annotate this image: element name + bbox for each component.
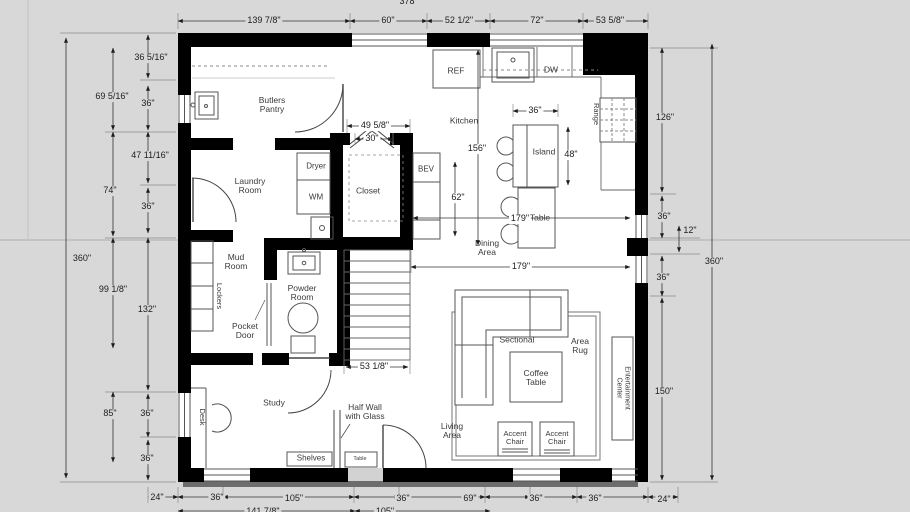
toilet-tank xyxy=(291,336,315,353)
small-table-box xyxy=(345,452,377,467)
accent-chair-2 xyxy=(540,422,574,456)
accent-chair-1 xyxy=(498,422,532,456)
coffee-table xyxy=(510,352,562,402)
entry-threshold xyxy=(348,468,383,481)
floorplan-canvas[interactable]: 139 7/8"60"52 1/2"72"53 5/8"378360"69 5/… xyxy=(0,0,910,512)
refrigerator xyxy=(433,50,480,88)
pantry-sink xyxy=(191,92,218,119)
floorplan-drawing xyxy=(0,0,910,512)
floor-interior xyxy=(178,33,648,482)
shelves-box xyxy=(287,452,332,466)
entertainment-center xyxy=(612,337,633,440)
